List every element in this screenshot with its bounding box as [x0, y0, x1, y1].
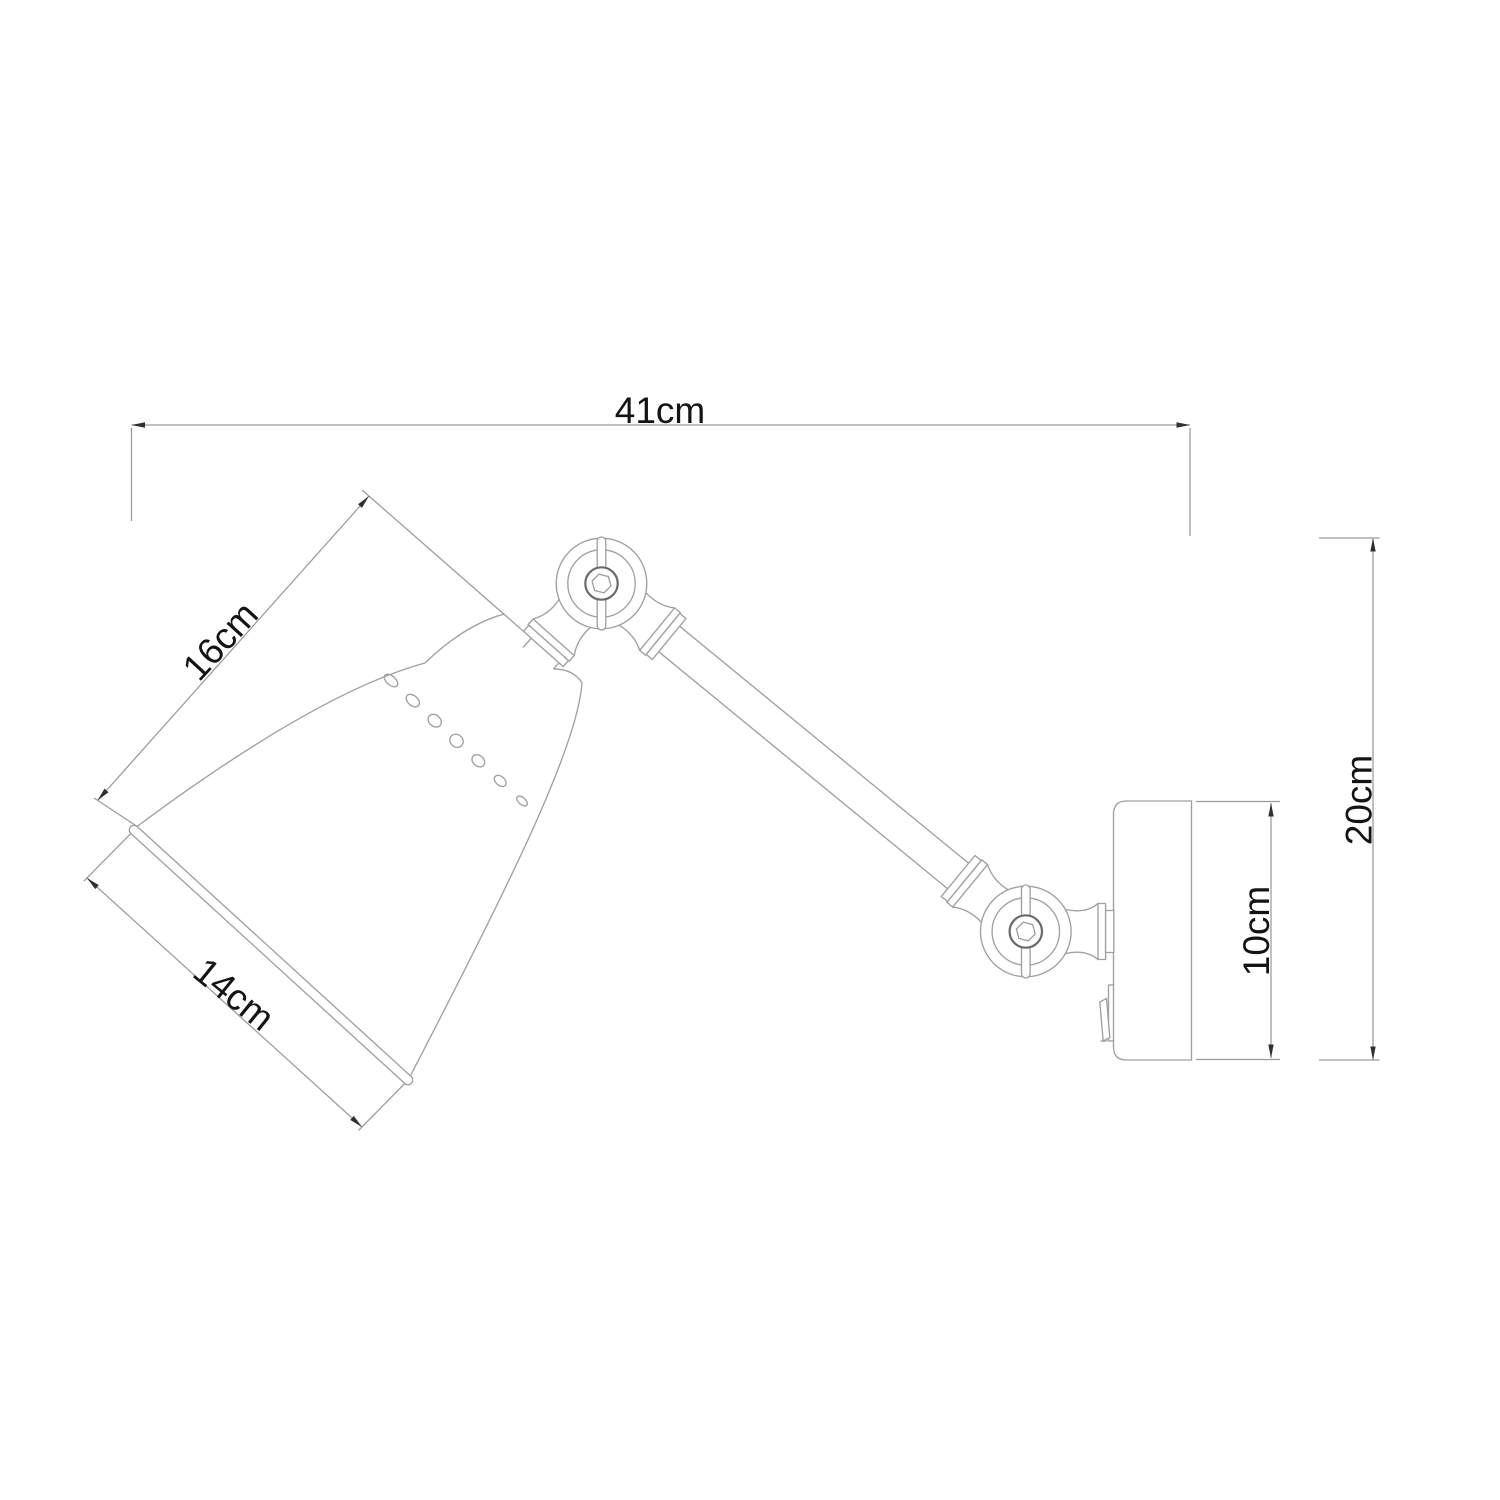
svg-text:10cm: 10cm	[1236, 886, 1277, 976]
svg-text:20cm: 20cm	[1339, 755, 1380, 845]
svg-text:41cm: 41cm	[615, 390, 705, 431]
